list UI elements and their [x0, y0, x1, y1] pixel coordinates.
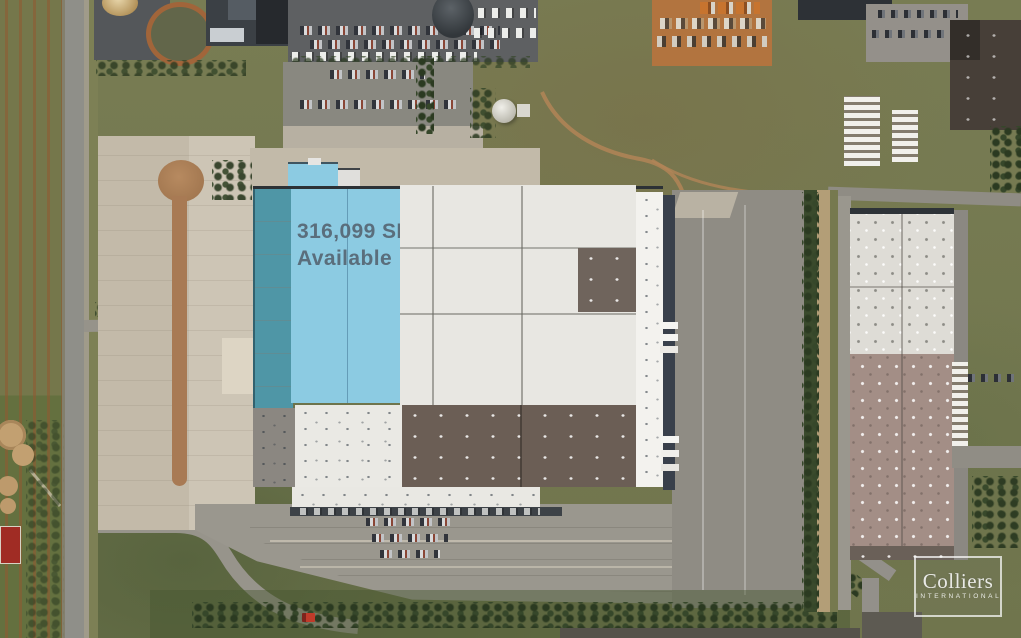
roof-seam: [400, 313, 636, 315]
dock-trailer: [660, 334, 678, 341]
e-parking-patch: [968, 374, 1014, 382]
warehouse-roof-teal-strip: [253, 189, 293, 408]
field-dirt-path: [542, 92, 683, 193]
landscape-strip: [172, 196, 187, 486]
roof-seam: [520, 405, 522, 487]
employee-cars: [380, 550, 440, 558]
east-tree-line: [802, 192, 819, 612]
warehouse-roof-white-sw: [295, 405, 402, 490]
s-dark-lot: [560, 628, 860, 638]
dock-trailer: [660, 346, 678, 353]
dock-trailer: [661, 464, 679, 471]
east-court-lane-line: [744, 205, 746, 595]
roof-seam: [432, 186, 434, 408]
employee-cars: [372, 534, 448, 542]
aerial-photo: 316,099 SF Available: [0, 0, 1021, 638]
dock-trailer: [661, 436, 679, 443]
east-court-ramp: [672, 192, 738, 218]
park-circle: [12, 444, 34, 466]
warehouse-notch-vent: [308, 158, 321, 165]
e-tree-cluster: [972, 476, 1021, 548]
warehouse-east-strip: [636, 192, 663, 487]
east-truck-court: [672, 190, 814, 608]
employee-cars: [366, 518, 454, 526]
e-driveway: [952, 446, 1021, 468]
warehouse-east-dock-shadow: [663, 195, 675, 490]
warehouse-roof-dark-south: [402, 405, 636, 487]
right-warehouse-seam: [850, 286, 954, 288]
warehouse-roof-south-wing: [292, 487, 540, 508]
dock-trailer: [660, 322, 678, 329]
warehouse-roof-gray-block: [253, 408, 295, 487]
south-tree-row: [192, 602, 837, 628]
warehouse-roof-dark-upper: [578, 248, 636, 312]
apron-tree-blob: [212, 160, 252, 200]
east-court-lane-line: [702, 210, 704, 590]
park-circle: [0, 498, 16, 514]
colliers-logo-subtext: INTERNATIONAL: [916, 592, 1000, 601]
colliers-logo: Colliers INTERNATIONAL: [914, 556, 1002, 617]
red-roof-barn: [0, 526, 21, 564]
right-warehouse-seam: [901, 214, 903, 546]
dock-trailer: [661, 450, 679, 457]
south-dock-trailers: [300, 508, 540, 515]
colliers-logo-wordmark: Colliers: [916, 570, 1000, 592]
red-truck: [302, 613, 315, 622]
roof-seam: [521, 186, 523, 408]
se-dark-lot: [862, 612, 922, 638]
apron-pad: [222, 338, 254, 394]
